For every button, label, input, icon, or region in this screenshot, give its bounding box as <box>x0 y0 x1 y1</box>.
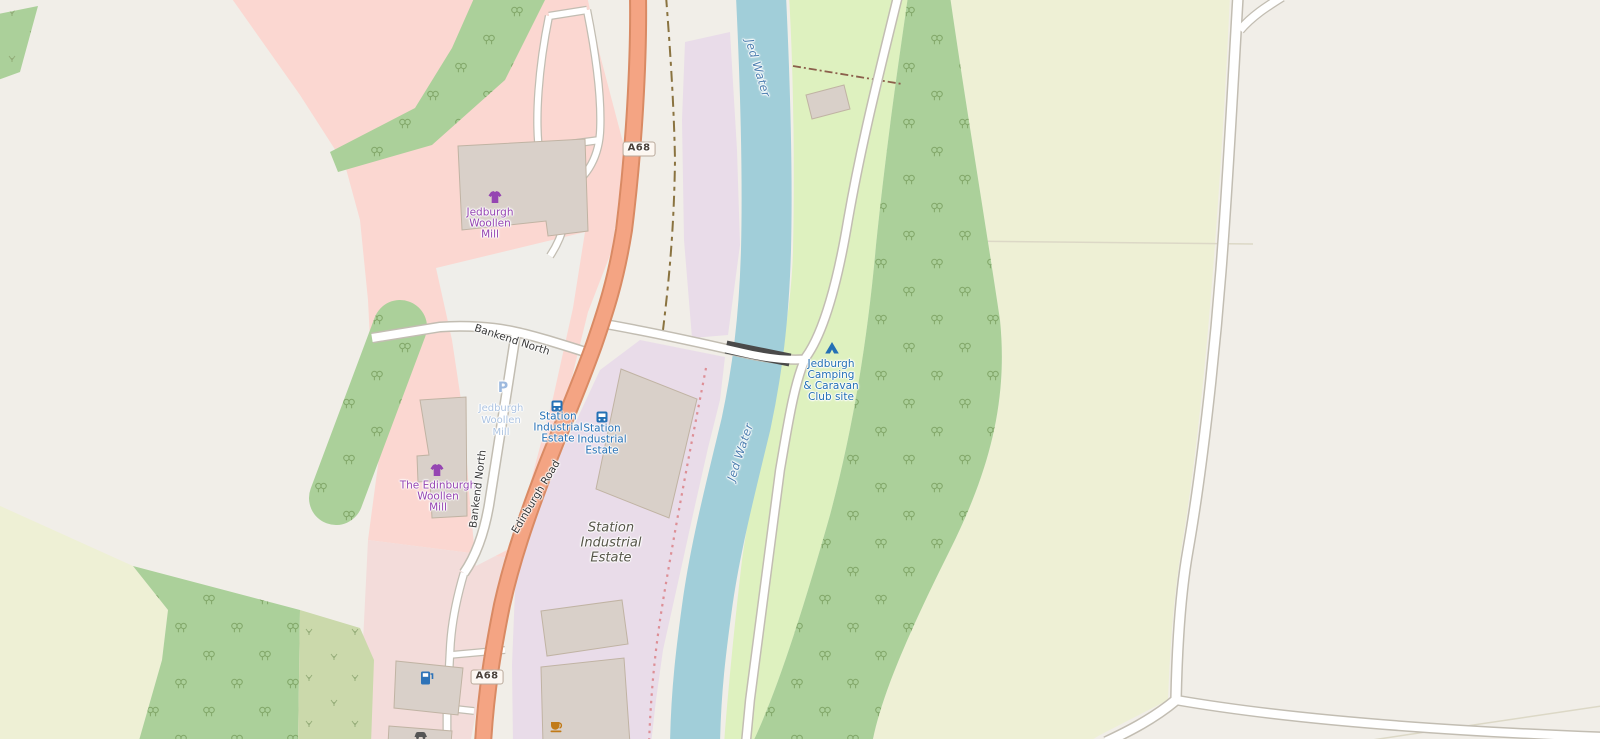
campsite-tent-icon <box>825 342 840 355</box>
bus-stop-icon <box>597 412 608 423</box>
map-base-layer <box>0 0 1600 739</box>
industrial-area-north <box>682 32 740 338</box>
car-icon <box>414 730 429 739</box>
map-canvas[interactable]: P A68 A68 Jedburgh Woollen Mill The Edin… <box>0 0 1600 739</box>
clothing-shop-icon <box>488 191 503 204</box>
a68-road-shield: A68 <box>471 670 504 685</box>
clothing-shop-icon <box>430 464 445 477</box>
bus-stop-icon <box>552 401 563 412</box>
fuel-station-icon <box>420 671 434 685</box>
a68-road-shield: A68 <box>623 142 656 157</box>
cafe-icon <box>550 721 564 733</box>
